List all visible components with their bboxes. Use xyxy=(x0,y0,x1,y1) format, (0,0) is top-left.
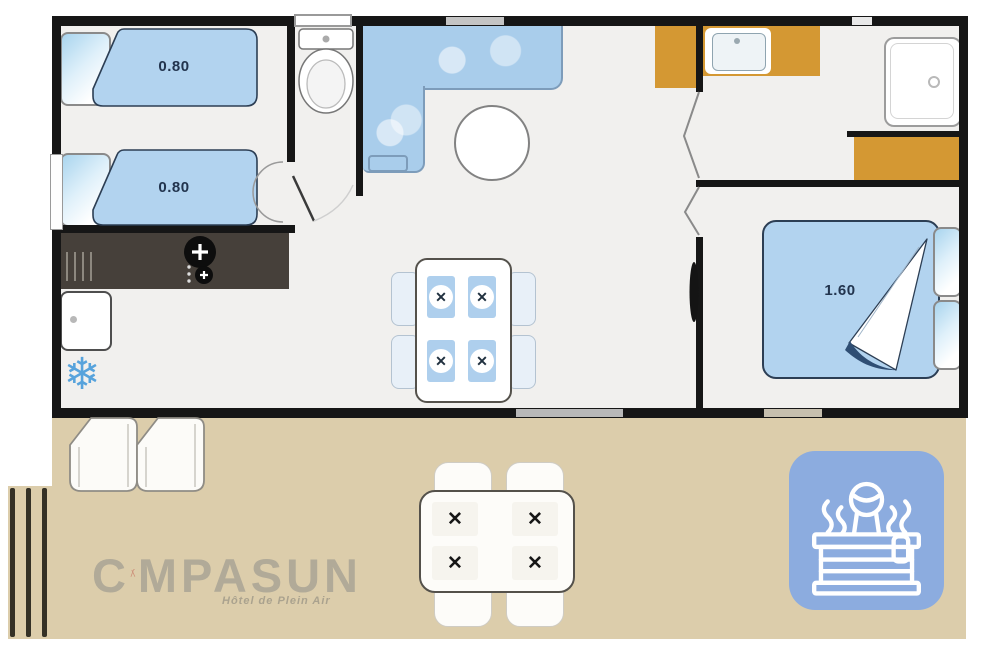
place-setting: ✕ xyxy=(427,340,455,382)
double-bed-pillow-2 xyxy=(933,300,962,370)
wardrobe xyxy=(854,137,968,181)
bather-face-line xyxy=(854,496,879,501)
cutlery-icon: ✕ xyxy=(470,285,494,309)
steam-icon xyxy=(838,507,845,534)
wall-top xyxy=(52,16,968,26)
tub-base xyxy=(814,583,919,594)
cutlery-icon: ✕ xyxy=(429,285,453,309)
wall-mid-lower xyxy=(696,237,703,417)
place-setting: ✕ xyxy=(512,546,558,580)
freezer-icon: ❄ xyxy=(56,348,108,402)
bathroom-cabinet xyxy=(655,26,696,88)
wall-bottom xyxy=(52,408,968,418)
steam-icon xyxy=(824,501,832,532)
tent-letter-a-icon xyxy=(130,547,136,599)
wall-mid-upper xyxy=(696,16,703,92)
place-setting: ✕ xyxy=(432,502,478,536)
double-bed-size-label: 1.60 xyxy=(800,282,880,299)
window-kitchen xyxy=(446,17,504,25)
steam-icon xyxy=(888,507,895,534)
drainer-line xyxy=(74,252,76,281)
wall-bath-south xyxy=(696,180,968,187)
window-bathroom xyxy=(852,17,872,25)
twin-bed-2-pillow xyxy=(60,153,111,227)
window-wc xyxy=(294,14,352,27)
floor-plan-canvas: ❄ ✕ ✕ ✕ ✕ ✕ ✕ ✕ ✕ xyxy=(0,0,1000,662)
place-setting: ✕ xyxy=(512,502,558,536)
double-bed-mattress xyxy=(762,220,940,379)
steam-icon xyxy=(901,501,909,532)
wall-wc-left xyxy=(287,16,295,162)
kitchen-sink-faucet xyxy=(70,316,77,323)
place-setting: ✕ xyxy=(468,276,496,318)
logo-letter-c: C xyxy=(92,548,130,603)
tub-slats xyxy=(821,560,912,572)
shower-tray xyxy=(890,43,954,119)
cutlery-icon: ✕ xyxy=(429,349,453,373)
step-stripe xyxy=(42,488,47,637)
double-bed-pillow-1 xyxy=(933,227,962,297)
kitchen-sink xyxy=(60,291,112,351)
place-setting: ✕ xyxy=(468,340,496,382)
step-stripe xyxy=(26,488,31,637)
twin-bed-2-size-label: 0.80 xyxy=(134,179,214,196)
place-setting: ✕ xyxy=(427,276,455,318)
kitchen-counter-top xyxy=(363,26,563,90)
drainer-line xyxy=(82,252,84,281)
place-setting: ✕ xyxy=(432,546,478,580)
step-stripe xyxy=(10,488,15,637)
cutlery-icon: ✕ xyxy=(470,349,494,373)
bathroom-sink-faucet xyxy=(734,38,740,44)
kitchen-counter-dark xyxy=(61,233,289,289)
wall-wardrobe-top xyxy=(847,131,968,137)
round-table xyxy=(454,105,530,181)
twin-bed-1-size-label: 0.80 xyxy=(134,58,214,75)
drainer-line xyxy=(66,252,68,281)
window-left xyxy=(50,154,63,230)
window-bedroom xyxy=(764,409,822,417)
wall-wc-right xyxy=(356,16,363,196)
drainer-line xyxy=(90,252,92,281)
shower-drain xyxy=(928,76,940,88)
hot-tub-icon xyxy=(789,451,944,610)
campasun-tagline: Hôtel de Plein Air xyxy=(222,595,382,607)
wall-right xyxy=(959,16,968,418)
window-living xyxy=(516,409,623,417)
wall-bedroom-south xyxy=(52,225,295,233)
kitchen-hob-inset xyxy=(368,155,408,172)
twin-bed-1-pillow xyxy=(60,32,111,106)
hot-tub-badge xyxy=(789,451,944,610)
